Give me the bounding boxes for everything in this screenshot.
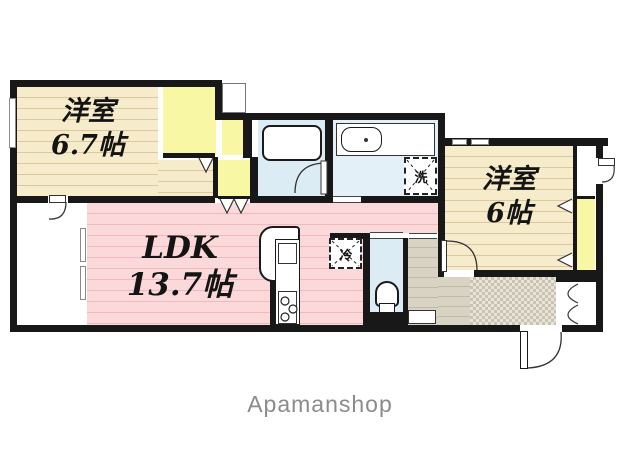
wall bbox=[368, 312, 405, 325]
genkan-closet-fold-1 bbox=[568, 284, 578, 303]
toilet-base bbox=[379, 303, 395, 313]
bedroom1-closet bbox=[163, 87, 216, 155]
wall bbox=[10, 80, 222, 87]
entry-door-swing bbox=[528, 332, 561, 368]
genkan-closet bbox=[578, 282, 595, 325]
wall bbox=[474, 270, 596, 277]
bedroom2-window-1 bbox=[452, 139, 467, 145]
vanity-sink bbox=[341, 127, 382, 152]
ldk-window-2 bbox=[80, 266, 86, 300]
corridor-door bbox=[409, 233, 437, 239]
ldk-size: 13.7帖 bbox=[100, 267, 260, 304]
genkan-closet-fold-2 bbox=[568, 305, 578, 324]
bedroom2-size: 6帖 bbox=[445, 197, 573, 231]
wall bbox=[325, 120, 333, 196]
wall bbox=[213, 157, 218, 198]
bedroom1-label: 洋室 6.7帖 bbox=[18, 95, 158, 163]
wall bbox=[10, 325, 603, 332]
closet-divider bbox=[577, 196, 595, 199]
ldk-label: LDK 13.7帖 bbox=[100, 230, 260, 304]
bedroom2-label: 洋室 6帖 bbox=[445, 163, 573, 231]
genkan-floor bbox=[470, 277, 556, 325]
bedroom2-name: 洋室 bbox=[445, 163, 573, 197]
fridge-label: 冷 bbox=[334, 245, 358, 264]
bedroom1-size: 6.7帖 bbox=[18, 129, 158, 163]
bedroom2-door-gap bbox=[444, 270, 474, 277]
storage-door-leaf bbox=[598, 158, 615, 166]
bedroom1-closet-extension bbox=[222, 120, 243, 155]
bathtub bbox=[262, 125, 322, 161]
closet-front bbox=[218, 196, 250, 199]
bedroom2-door-leaf bbox=[441, 240, 447, 272]
bedroom2-storage bbox=[577, 146, 595, 196]
wall bbox=[10, 196, 48, 203]
shoe-step bbox=[408, 310, 436, 324]
ldk-window-1 bbox=[80, 228, 86, 262]
washroom-door bbox=[333, 196, 361, 203]
closet-front bbox=[163, 153, 215, 158]
hall-closet bbox=[218, 160, 250, 196]
ldk-nook-floor bbox=[363, 203, 438, 233]
toilet-door bbox=[370, 232, 403, 239]
washer-label: 洗 bbox=[409, 167, 433, 186]
wall bbox=[573, 146, 577, 270]
bedroom2-window-2 bbox=[471, 139, 489, 145]
bedroom1-door-leaf bbox=[49, 195, 66, 203]
exterior-notch bbox=[222, 83, 246, 113]
corridor-floor-2 bbox=[438, 277, 470, 325]
kitchen-sink bbox=[278, 243, 297, 264]
kitchen-stove bbox=[278, 291, 297, 324]
bedroom1-window bbox=[9, 98, 16, 148]
wall bbox=[68, 196, 215, 203]
bedroom2-closet bbox=[577, 198, 595, 270]
wall bbox=[243, 117, 252, 158]
bedroom1-name: 洋室 bbox=[18, 95, 158, 129]
floor-plan: 洋室 6.7帖 LDK 13.7帖 洋室 6帖 洗 冷 Apamanshop bbox=[0, 0, 640, 455]
ldk-name: LDK bbox=[100, 230, 260, 267]
entry-door-leaf bbox=[520, 331, 528, 369]
watermark: Apamanshop bbox=[0, 391, 640, 418]
side-balcony bbox=[16, 203, 80, 325]
bedroom1-floor-strip bbox=[158, 160, 216, 196]
storage-door-swing bbox=[602, 165, 614, 182]
